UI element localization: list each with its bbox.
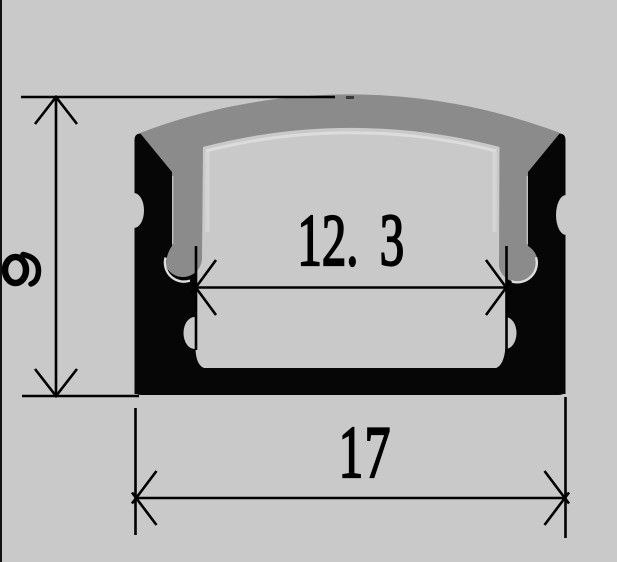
svg-text:3: 3 [380, 199, 404, 282]
svg-text:7: 7 [365, 411, 391, 493]
svg-text:12.: 12. [297, 199, 358, 282]
svg-text:1: 1 [339, 411, 363, 494]
